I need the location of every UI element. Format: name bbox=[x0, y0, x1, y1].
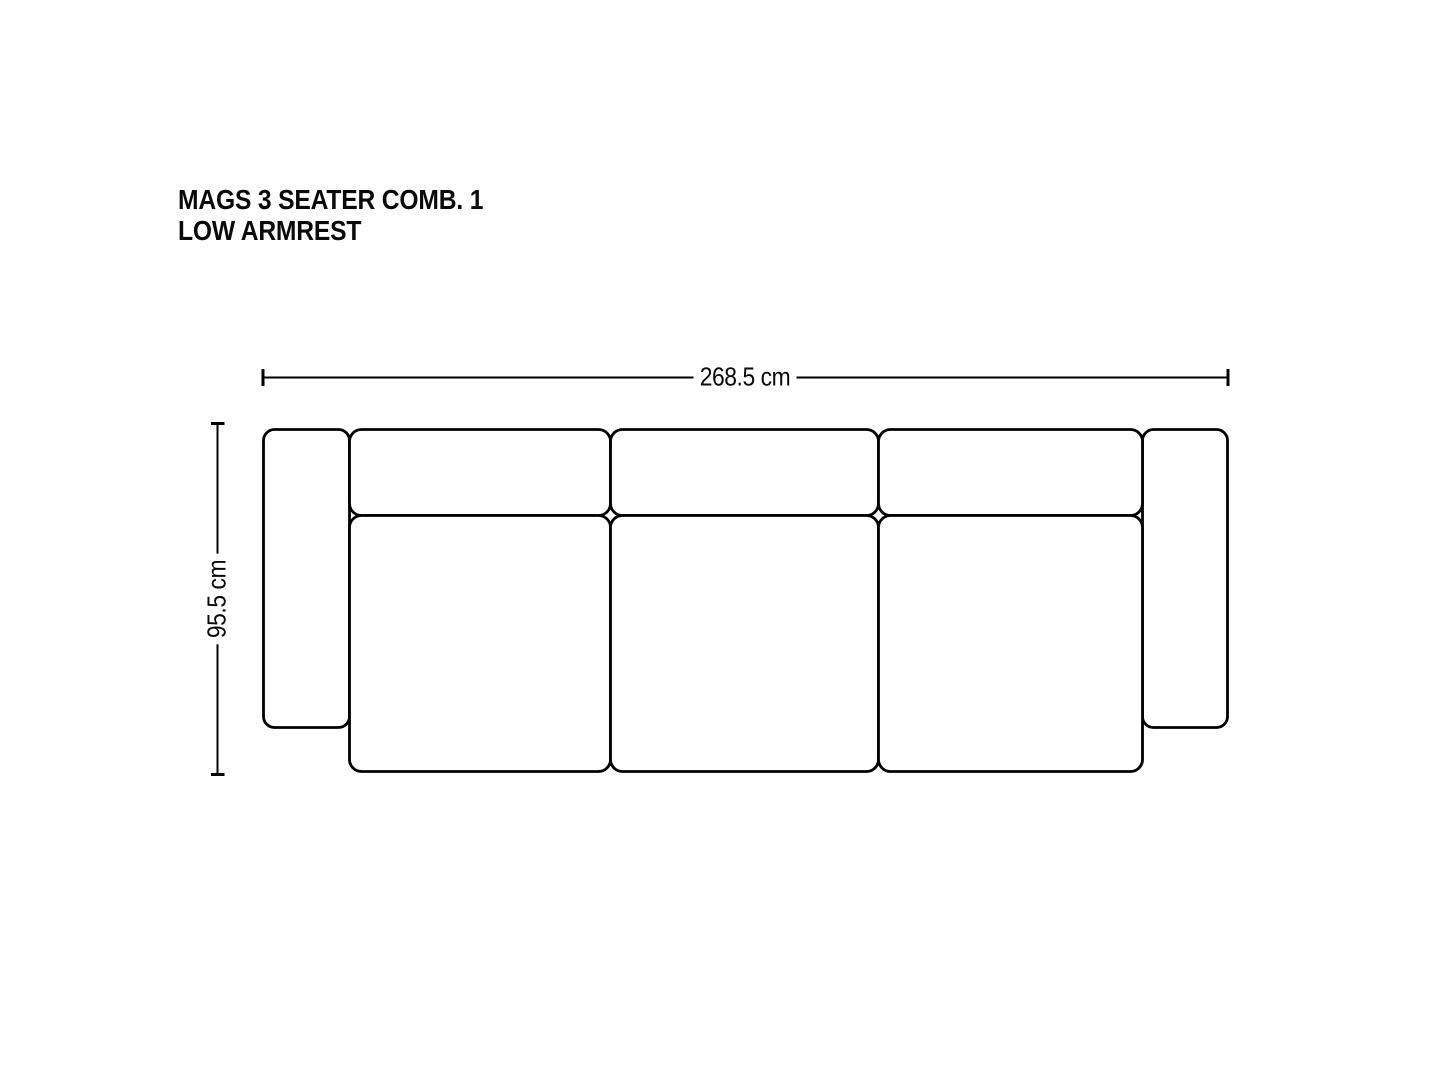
depth-dimension-label: 95.5 cm bbox=[203, 554, 232, 645]
backrest-cushion-2-shape bbox=[611, 430, 879, 516]
seat-cushion-2-shape bbox=[611, 516, 879, 772]
left-armrest-shape bbox=[264, 430, 350, 728]
backrest-cushion-1-shape bbox=[350, 430, 611, 516]
width-dimension-label: 268.5 cm bbox=[694, 363, 797, 392]
backrest-cushion-3-shape bbox=[879, 430, 1143, 516]
sofa-outline bbox=[264, 430, 1228, 772]
seat-cushion-1-shape bbox=[350, 516, 611, 772]
sofa-top-view-diagram bbox=[0, 0, 1445, 1087]
seat-cushion-3-shape bbox=[879, 516, 1143, 772]
product-dimension-diagram-page: MAGS 3 SEATER COMB. 1 LOW ARMREST bbox=[0, 0, 1445, 1087]
right-armrest-shape bbox=[1143, 430, 1228, 728]
